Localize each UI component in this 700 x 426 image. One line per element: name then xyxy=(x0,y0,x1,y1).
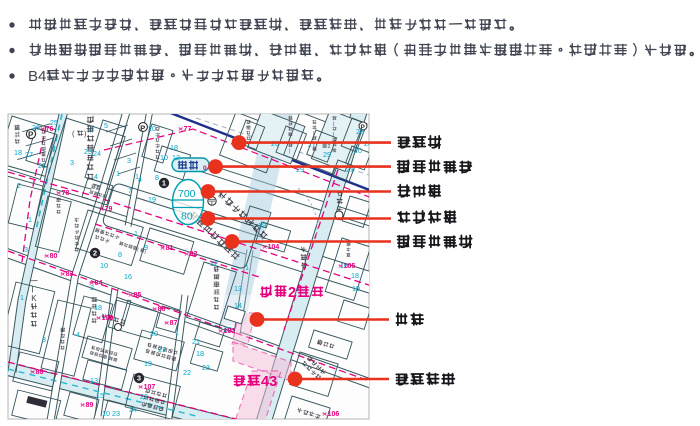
svg-text:19: 19 xyxy=(148,195,156,204)
svg-text:22: 22 xyxy=(183,368,191,377)
svg-text:3: 3 xyxy=(127,156,131,165)
svg-text:104: 104 xyxy=(268,244,280,251)
svg-text:106: 106 xyxy=(328,411,340,418)
svg-text:84: 84 xyxy=(95,280,103,287)
svg-text:43: 43 xyxy=(261,374,277,390)
svg-text:18: 18 xyxy=(14,148,22,157)
svg-text:10: 10 xyxy=(160,153,168,162)
svg-text:78: 78 xyxy=(62,190,70,197)
svg-text:1: 1 xyxy=(116,169,120,178)
svg-text:88: 88 xyxy=(36,369,44,376)
svg-text:3: 3 xyxy=(137,374,141,383)
svg-text:2: 2 xyxy=(288,285,296,301)
svg-text:23: 23 xyxy=(112,409,120,418)
svg-text:16: 16 xyxy=(124,272,132,281)
svg-text:29: 29 xyxy=(323,150,331,159)
svg-text:87: 87 xyxy=(170,320,178,327)
svg-text:23: 23 xyxy=(202,363,210,372)
svg-text:79: 79 xyxy=(105,206,113,213)
svg-text:19: 19 xyxy=(258,221,266,230)
svg-text:24: 24 xyxy=(93,149,101,158)
svg-text:23: 23 xyxy=(84,147,92,156)
svg-text:1: 1 xyxy=(134,229,138,238)
svg-text:4: 4 xyxy=(94,172,98,181)
svg-text:100: 100 xyxy=(102,315,114,322)
svg-text:8: 8 xyxy=(118,250,122,259)
svg-text:7: 7 xyxy=(128,186,132,195)
svg-text:1: 1 xyxy=(162,179,166,188)
svg-text:1: 1 xyxy=(20,293,24,302)
svg-text:77: 77 xyxy=(184,126,192,133)
svg-text:12: 12 xyxy=(172,153,180,162)
svg-text:4: 4 xyxy=(76,330,80,339)
svg-text:1: 1 xyxy=(245,263,249,272)
svg-text:82: 82 xyxy=(190,251,198,258)
svg-text:B4: B4 xyxy=(28,68,46,85)
svg-text:1: 1 xyxy=(28,215,32,224)
svg-text:10: 10 xyxy=(102,409,110,418)
svg-text:20: 20 xyxy=(148,124,156,133)
svg-text:1: 1 xyxy=(135,172,139,181)
svg-text:13: 13 xyxy=(90,376,98,385)
svg-text:12: 12 xyxy=(210,259,218,268)
svg-text:21: 21 xyxy=(158,345,166,354)
svg-text:83: 83 xyxy=(66,271,74,278)
svg-text:107: 107 xyxy=(144,384,156,391)
svg-text:13: 13 xyxy=(234,284,242,293)
svg-text:21: 21 xyxy=(192,337,200,346)
svg-text:18: 18 xyxy=(94,303,102,312)
svg-text:3: 3 xyxy=(42,335,46,344)
svg-text:24: 24 xyxy=(129,405,137,414)
svg-text:27: 27 xyxy=(25,150,33,159)
svg-text:76: 76 xyxy=(46,126,54,133)
svg-text:18: 18 xyxy=(196,349,204,358)
svg-text:0: 0 xyxy=(203,165,207,172)
svg-text:15: 15 xyxy=(96,391,104,400)
svg-text:10: 10 xyxy=(100,261,108,270)
svg-text:18: 18 xyxy=(170,143,178,152)
svg-text:K: K xyxy=(31,294,37,303)
svg-text:19: 19 xyxy=(352,284,360,293)
svg-text:102: 102 xyxy=(224,328,236,335)
svg-text:23: 23 xyxy=(356,127,364,136)
svg-text:2: 2 xyxy=(17,181,21,190)
svg-text:21: 21 xyxy=(38,161,46,170)
svg-text:80: 80 xyxy=(50,253,58,260)
svg-text:105: 105 xyxy=(344,263,356,270)
svg-text:5: 5 xyxy=(104,121,108,130)
svg-text:1: 1 xyxy=(175,328,179,337)
svg-text:P: P xyxy=(140,123,145,132)
svg-text:80: 80 xyxy=(181,211,193,223)
svg-text:700: 700 xyxy=(178,188,196,200)
svg-text:86: 86 xyxy=(158,306,166,313)
svg-text:8: 8 xyxy=(155,173,159,182)
svg-text:14: 14 xyxy=(234,301,242,310)
svg-text:9: 9 xyxy=(144,243,148,252)
svg-text:20: 20 xyxy=(150,329,158,338)
svg-text:26: 26 xyxy=(32,123,40,132)
svg-text:2: 2 xyxy=(90,125,94,134)
svg-text:89: 89 xyxy=(86,402,94,409)
svg-text:3: 3 xyxy=(24,245,28,254)
svg-text:3: 3 xyxy=(70,158,74,167)
svg-text:23: 23 xyxy=(140,392,148,401)
svg-text:19: 19 xyxy=(144,359,152,368)
svg-text:20: 20 xyxy=(354,146,362,155)
svg-text:18: 18 xyxy=(351,271,359,280)
svg-text:81: 81 xyxy=(166,245,174,252)
svg-text:2: 2 xyxy=(93,249,97,258)
svg-text:85: 85 xyxy=(134,292,142,299)
